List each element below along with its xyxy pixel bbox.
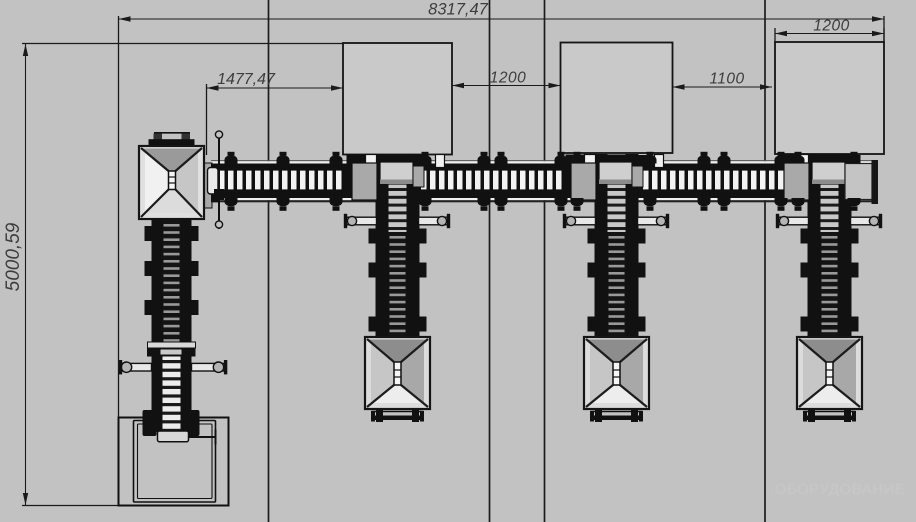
svg-text:8317,47: 8317,47 bbox=[428, 1, 488, 19]
svg-text:1200: 1200 bbox=[490, 70, 526, 87]
svg-text:1477,47: 1477,47 bbox=[217, 71, 276, 88]
svg-text:1100: 1100 bbox=[709, 71, 744, 88]
svg-text:ОБОРУДОВАНИЕ: ОБОРУДОВАНИЕ bbox=[775, 481, 906, 498]
svg-text:5000,59: 5000,59 bbox=[3, 222, 24, 291]
svg-text:1200: 1200 bbox=[813, 18, 849, 35]
